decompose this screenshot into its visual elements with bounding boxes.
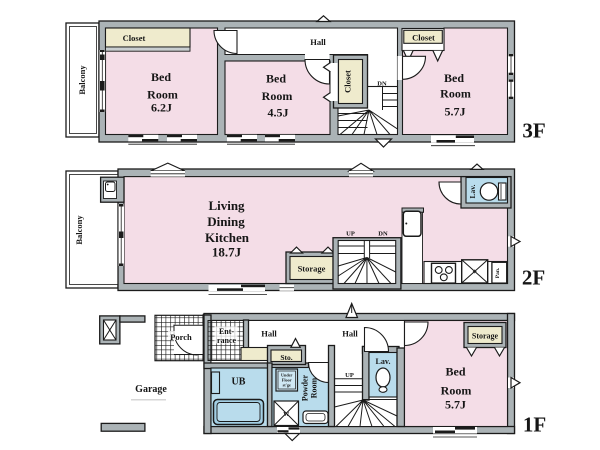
- svg-text:5.7J: 5.7J: [445, 105, 466, 119]
- svg-text:Lav.: Lav.: [376, 357, 391, 366]
- svg-text:Room: Room: [147, 88, 178, 102]
- svg-text:Room: Room: [440, 87, 471, 101]
- svg-text:18.7J: 18.7J: [212, 245, 242, 260]
- svg-text:UB: UB: [232, 377, 246, 388]
- svg-text:Living: Living: [208, 198, 245, 213]
- svg-text:DN: DN: [378, 231, 388, 238]
- svg-text:1F: 1F: [523, 413, 546, 437]
- svg-text:Balcony: Balcony: [77, 65, 87, 95]
- svg-text:3F: 3F: [522, 119, 545, 143]
- svg-text:Closet: Closet: [412, 33, 435, 43]
- svg-text:Porch: Porch: [170, 332, 192, 342]
- svg-text:Hall: Hall: [342, 329, 358, 339]
- svg-text:DN: DN: [377, 81, 387, 88]
- svg-text:Balcony: Balcony: [74, 215, 84, 245]
- svg-text:6.2J: 6.2J: [151, 101, 172, 115]
- svg-text:5.7J: 5.7J: [445, 398, 466, 412]
- svg-text:Hall: Hall: [310, 37, 326, 47]
- svg-text:W: W: [283, 412, 289, 418]
- svg-text:2F: 2F: [522, 266, 545, 290]
- svg-text:Bed: Bed: [445, 365, 465, 379]
- svg-text:Closet: Closet: [343, 70, 353, 93]
- svg-text:Dining: Dining: [207, 214, 245, 229]
- svg-text:Storage: Storage: [298, 264, 326, 274]
- svg-text:Bed: Bed: [266, 72, 286, 86]
- svg-text:Room: Room: [310, 377, 319, 398]
- svg-text:Ent-: Ent-: [219, 327, 234, 336]
- svg-text:st'ge: st'ge: [283, 383, 291, 388]
- svg-text:Closet: Closet: [123, 33, 146, 43]
- svg-text:UP: UP: [345, 372, 354, 379]
- svg-text:Garage: Garage: [135, 384, 167, 395]
- svg-text:rance: rance: [217, 336, 237, 345]
- svg-text:Sto.: Sto.: [280, 353, 292, 362]
- svg-text:Room: Room: [262, 89, 293, 103]
- svg-text:Pan.: Pan.: [495, 267, 501, 278]
- svg-text:Hall: Hall: [261, 329, 277, 339]
- svg-text:Storage: Storage: [472, 332, 499, 341]
- svg-text:Bed: Bed: [444, 71, 464, 85]
- svg-text:Bed: Bed: [151, 70, 171, 84]
- svg-text:Room: Room: [441, 384, 472, 398]
- svg-text:Powder: Powder: [301, 374, 310, 401]
- svg-text:4.5J: 4.5J: [268, 106, 289, 120]
- svg-text:UP: UP: [346, 231, 355, 238]
- svg-text:Lav.: Lav.: [468, 184, 477, 198]
- svg-text:Kitchen: Kitchen: [205, 230, 250, 245]
